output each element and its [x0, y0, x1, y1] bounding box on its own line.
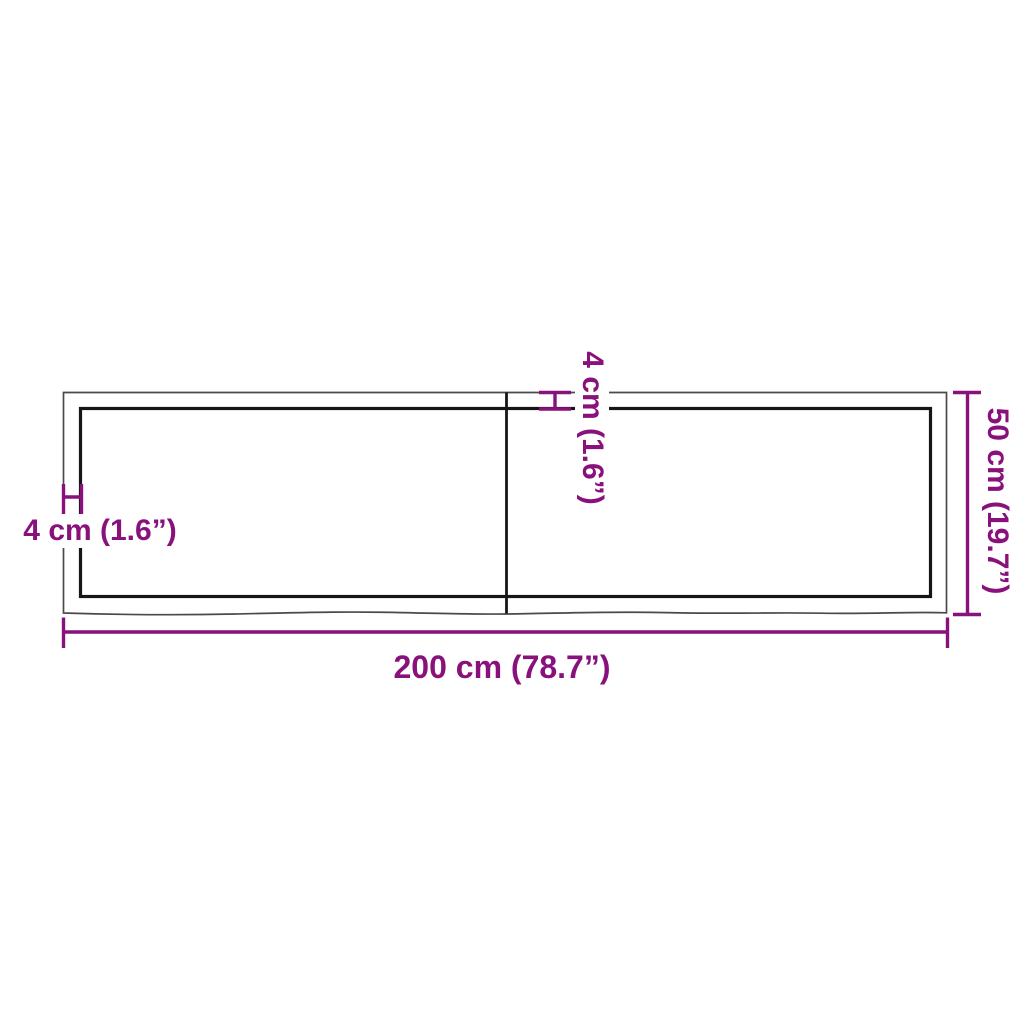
diagram-line-art: [0, 0, 1024, 1024]
thickness-bracket-center: [539, 393, 571, 410]
dimension-diagram: 4 cm (1.6”) 4 cm (1.6”) 50 cm (19.7”) 20…: [0, 0, 1024, 1024]
panel-outer-outline: [64, 393, 947, 615]
thickness-center-label: 4 cm (1.6”): [575, 346, 609, 509]
length-dimension-line: [64, 618, 948, 649]
thickness-bracket-left: [64, 484, 82, 517]
length-label: 200 cm (78.7”): [393, 651, 610, 683]
depth-dimension-line: [953, 393, 981, 615]
thickness-left-label: 4 cm (1.6”): [18, 514, 181, 548]
depth-label: 50 cm (19.7”): [982, 408, 1012, 595]
